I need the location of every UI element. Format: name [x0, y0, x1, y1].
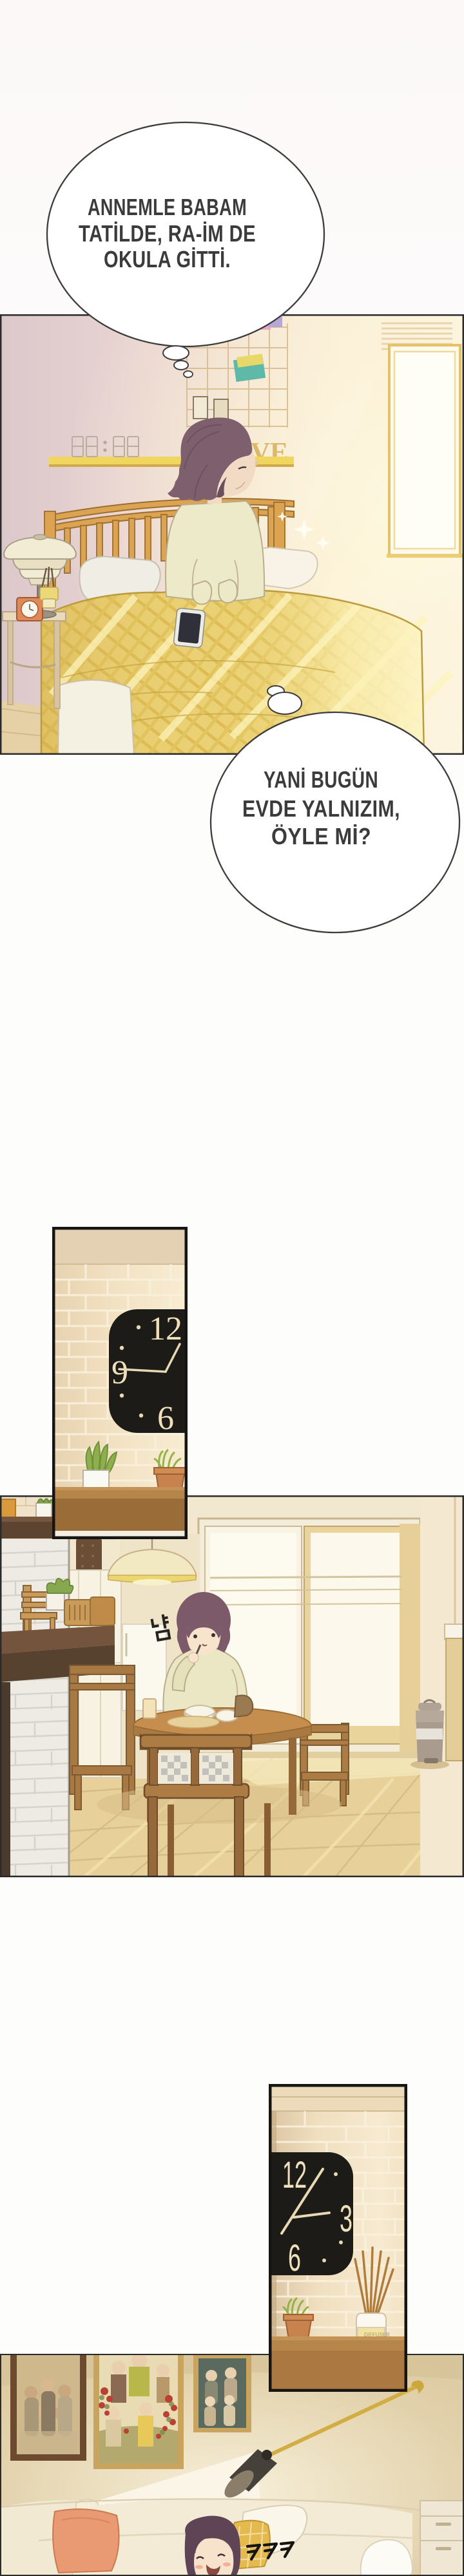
svg-text:EVDE YALNIZIM,: EVDE YALNIZIM, — [242, 795, 400, 822]
svg-text:3: 3 — [340, 2198, 353, 2240]
svg-text:ANNEMLE BABAM: ANNEMLE BABAM — [88, 194, 247, 220]
svg-text:YANİ BUGÜN: YANİ BUGÜN — [264, 766, 378, 793]
svg-text:9: 9 — [111, 1354, 128, 1391]
svg-text:OKULA GİTTİ.: OKULA GİTTİ. — [104, 246, 231, 272]
svg-text:TATİLDE, RA-İM DE: TATİLDE, RA-İM DE — [79, 220, 256, 247]
svg-text:12: 12 — [282, 2154, 307, 2196]
svg-text:6: 6 — [288, 2237, 301, 2279]
svg-text:12: 12 — [149, 1311, 182, 1347]
svg-text:ÖYLE Mİ?: ÖYLE Mİ? — [271, 823, 371, 849]
svg-text:6: 6 — [157, 1400, 174, 1437]
